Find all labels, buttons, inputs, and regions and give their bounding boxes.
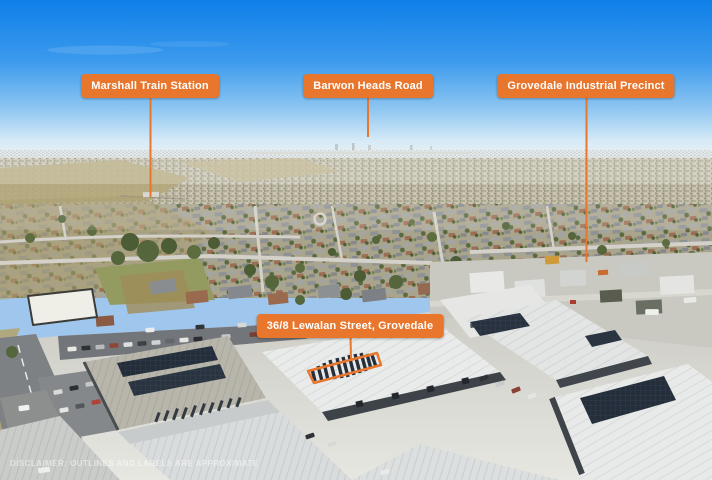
aerial-photo: Marshall Train Station Barwon Heads Road… (0, 0, 712, 480)
callout-barwon-heads-road: Barwon Heads Road (303, 74, 433, 98)
disclaimer-watermark: DISCLAIMER: Outlines and labels are appr… (10, 459, 259, 468)
aerial-photo-background (0, 0, 712, 480)
callout-grovedale-industrial-precinct: Grovedale Industrial Precinct (497, 74, 674, 98)
callout-property-address: 36/8 Lewalan Street, Grovedale (257, 314, 444, 338)
school-building (28, 289, 97, 325)
callout-marshall-train-station: Marshall Train Station (81, 74, 219, 98)
